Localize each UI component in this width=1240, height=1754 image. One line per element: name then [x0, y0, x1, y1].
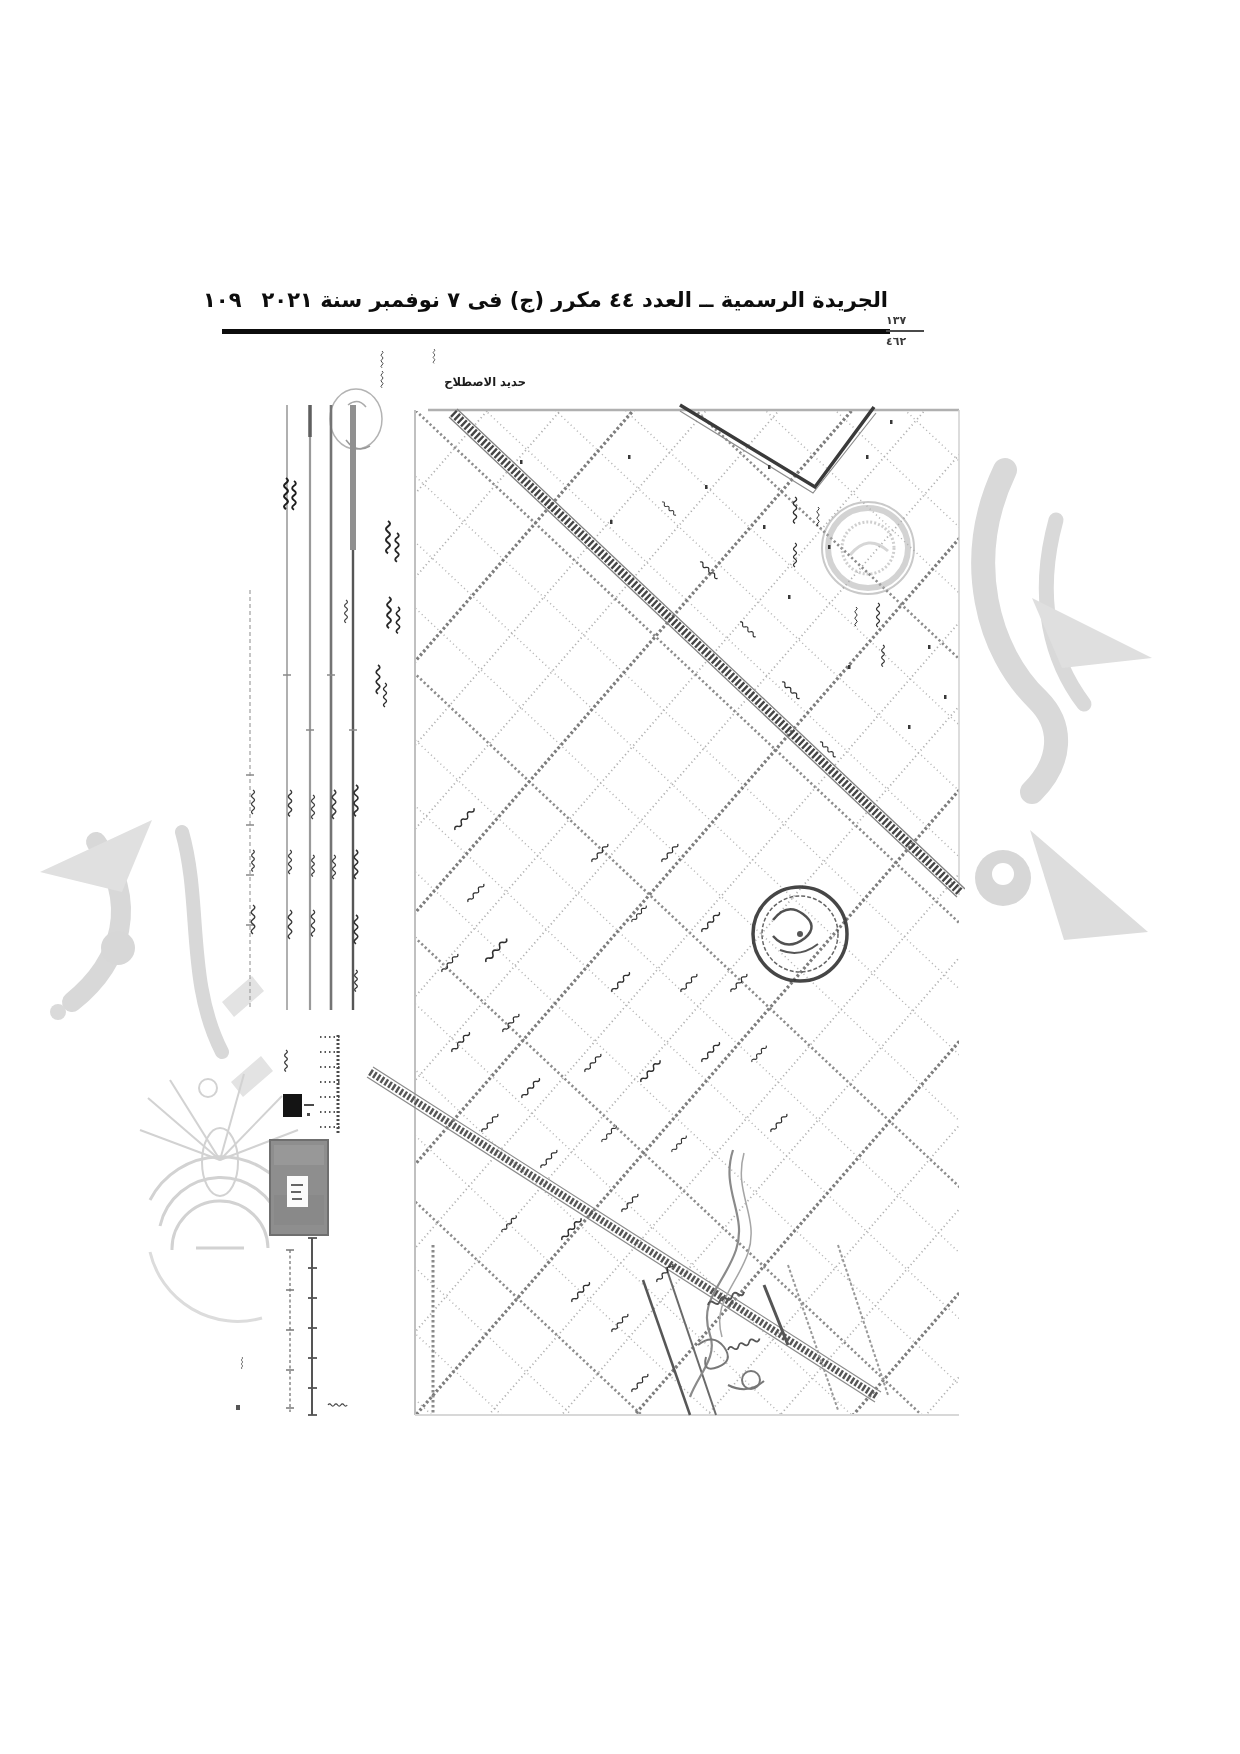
faint-round-seal-stamp-icon	[822, 502, 914, 594]
legend-line-samples	[246, 405, 357, 1010]
legend-bottom-block	[283, 1035, 342, 1133]
map-sheet-reference: ١٣٧ ٤٦٢	[886, 314, 958, 348]
scanned-map-image: حديد الاصطلاح	[228, 345, 965, 1420]
legend-black-square-icon	[283, 1094, 302, 1117]
railway-line	[449, 409, 965, 897]
map-frame	[415, 410, 959, 1415]
street-grid	[228, 345, 965, 1420]
sheet-ref-top: ١٣٧	[886, 314, 958, 327]
sheet-ref-divider	[886, 330, 924, 332]
gazette-scanned-page: الجريدة الرسمية ــ العدد ٤٤ مكرر (ج) فى …	[0, 0, 1240, 1754]
map-line-work	[228, 345, 965, 1420]
calligraphy-watermark-right-icon	[975, 470, 1152, 940]
canal-line	[690, 1150, 788, 1397]
bottom-streets	[433, 1245, 888, 1415]
boundary-wedge	[680, 405, 876, 493]
gray-photo-stamp-icon	[270, 1140, 328, 1235]
scale-bars	[236, 1238, 347, 1415]
railway-line-lower	[367, 1067, 881, 1402]
